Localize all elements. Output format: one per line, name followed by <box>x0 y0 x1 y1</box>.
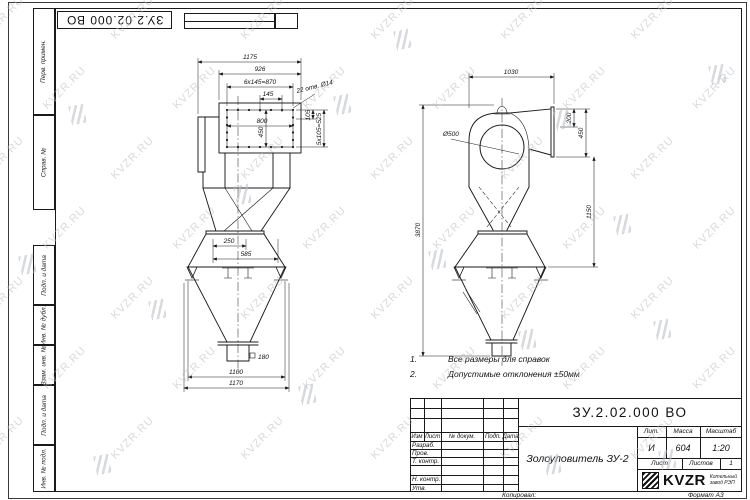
format-label: Формат А3 <box>688 492 724 499</box>
title-block: Изм Лист № докум. Подп. Дата Разраб. Про… <box>410 398 742 492</box>
notes-block: 1. Все размеры для справок 2. Допустимые… <box>410 354 650 384</box>
dim-105: 105 <box>305 109 312 120</box>
role-tkontr: Т. контр. <box>410 457 441 465</box>
dim-dia500: Ø500 <box>442 131 459 138</box>
dim-145: 145 <box>263 91 274 98</box>
note-2: 2. Допустимые отклонения ±50мм <box>410 369 650 379</box>
front-view: 1175 926 6x145=870 145 22 отв. Ø14 800 4… <box>184 54 334 392</box>
dim-200: 200 <box>566 112 573 124</box>
front-view-dimensions: 1175 926 6x145=870 145 22 отв. Ø14 800 4… <box>184 54 334 392</box>
role-nkontr: Н. контр. <box>410 475 441 484</box>
side-view-dimensions: 1030 Ø500 200 450 1150 3870 <box>415 69 598 356</box>
role-utv: Утв. <box>410 484 441 492</box>
dim-180-square: 180 <box>258 354 269 361</box>
lit-label: Лит. <box>637 426 666 437</box>
dim-1175: 1175 <box>243 54 257 61</box>
kvzr-logo-icon <box>642 472 659 489</box>
dim-1150: 1150 <box>586 205 593 219</box>
drawing-sheet: ЗУ.2.02.000 ВО Перв. примен. Справ. № По… <box>0 0 750 500</box>
dim-1100: 1100 <box>229 369 243 376</box>
role-prov: Пров. <box>410 449 441 457</box>
note-text: Все размеры для справок <box>448 354 550 364</box>
note-number: 2. <box>410 369 448 379</box>
mass-label: Масса <box>666 426 700 437</box>
dim-1030: 1030 <box>504 69 519 76</box>
dim-450-front: 450 <box>258 126 265 137</box>
drawing-title: Золоуловитель ЗУ-2 <box>518 426 637 492</box>
dim-926: 926 <box>255 66 266 73</box>
scale-value: 1:20 <box>700 437 742 458</box>
dim-3870: 3870 <box>415 222 422 237</box>
dim-525: 5x105=525 <box>316 112 323 145</box>
col-list: Лист <box>424 432 441 441</box>
dim-870: 6x145=870 <box>244 79 277 86</box>
col-podp: Подп. <box>483 432 503 441</box>
mass-value: 604 <box>666 437 700 458</box>
sheet-label: Лист <box>637 458 682 469</box>
sheets-value: 1 <box>720 458 742 469</box>
kvzr-logo-text: KVZR <box>663 472 706 489</box>
logo-caption-line2: завод РЭП <box>710 480 737 486</box>
note-1: 1. Все размеры для справок <box>410 354 650 364</box>
role-razrab: Разраб. <box>410 441 441 449</box>
side-view: 1030 Ø500 200 450 1150 3870 <box>415 69 598 366</box>
dim-1170: 1170 <box>229 380 243 387</box>
titleblock-doc-number: ЗУ.2.02.000 ВО <box>518 398 742 426</box>
note-number: 1. <box>410 354 448 364</box>
sheets-label: Листов <box>682 458 720 469</box>
col-data: Дата <box>503 432 518 441</box>
kvzr-logo-caption: Котельный завод РЭП <box>710 474 737 486</box>
holes-note: 22 отв. Ø14 <box>295 79 334 95</box>
dim-450-side: 450 <box>578 127 585 138</box>
dim-250: 250 <box>223 238 235 245</box>
col-izm: Изм <box>410 432 424 441</box>
dim-585: 585 <box>241 251 252 258</box>
copied-label: Копировал: <box>502 492 536 499</box>
company-logo-cell: KVZR Котельный завод РЭП <box>637 469 742 491</box>
col-docnum: № докум. <box>441 432 483 441</box>
scale-label: Масштаб <box>700 426 742 437</box>
lit-value: И <box>637 437 666 458</box>
note-text: Допустимые отклонения ±50мм <box>448 369 580 379</box>
